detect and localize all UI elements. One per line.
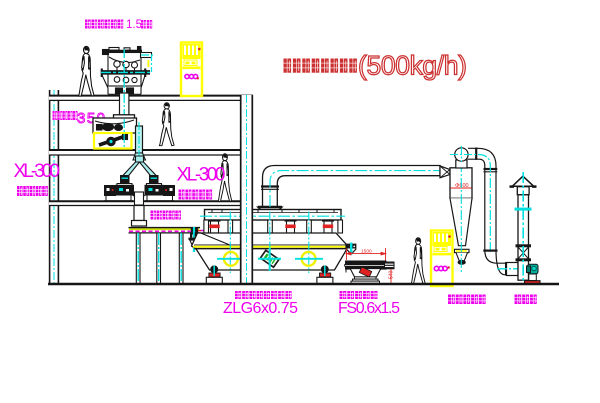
svg-text:1.5: 1.5: [126, 19, 142, 31]
svg-text:(500kg/h): (500kg/h): [358, 51, 467, 81]
svg-text:540: 540: [389, 270, 395, 279]
svg-text:XL-300: XL-300: [177, 165, 226, 186]
svg-text:ZLG6x0.75: ZLG6x0.75: [223, 300, 298, 317]
svg-text:FS0.6x1.5: FS0.6x1.5: [338, 300, 400, 317]
svg-text:1500: 1500: [361, 249, 372, 255]
svg-text:XL-300: XL-300: [14, 161, 61, 182]
